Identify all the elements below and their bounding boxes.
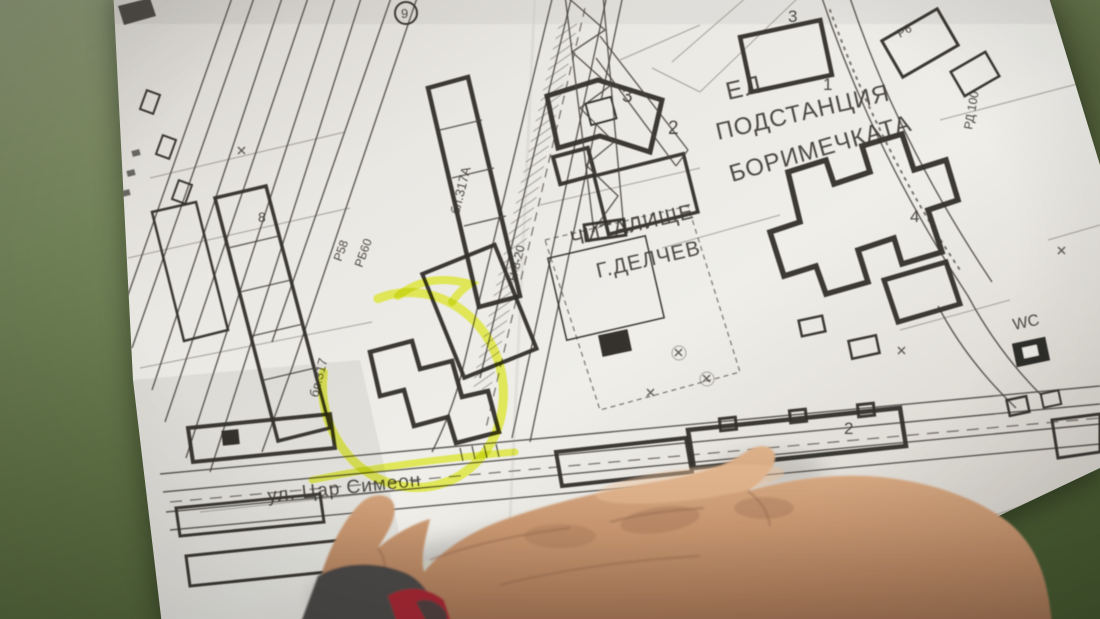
scene-svg: ЕЛ. ПОДСТАНЦИЯ БОРИМЕЧКАТА ЧИТАЛИЩЕ Г.ДЕ… [0,0,1100,619]
building-number: 9 [401,6,408,21]
building-number: 3 [788,7,797,26]
building-number: 8 [258,209,266,225]
label-block-317-west: бл.317 [105,313,128,352]
building-number: 2 [668,118,679,139]
building-number: 4 [910,207,919,226]
knuckle-shading [524,524,596,548]
knuckle-shading [734,497,794,519]
paper-top-shade [100,0,1100,24]
building-number: 3 [622,86,633,107]
building-number: 2 [844,419,853,438]
photo-of-hand-holding-city-plan: ЕЛ. ПОДСТАНЦИЯ БОРИМЕЧКАТА ЧИТАЛИЩЕ Г.ДЕ… [0,0,1100,619]
building-number: 1 [823,75,832,94]
